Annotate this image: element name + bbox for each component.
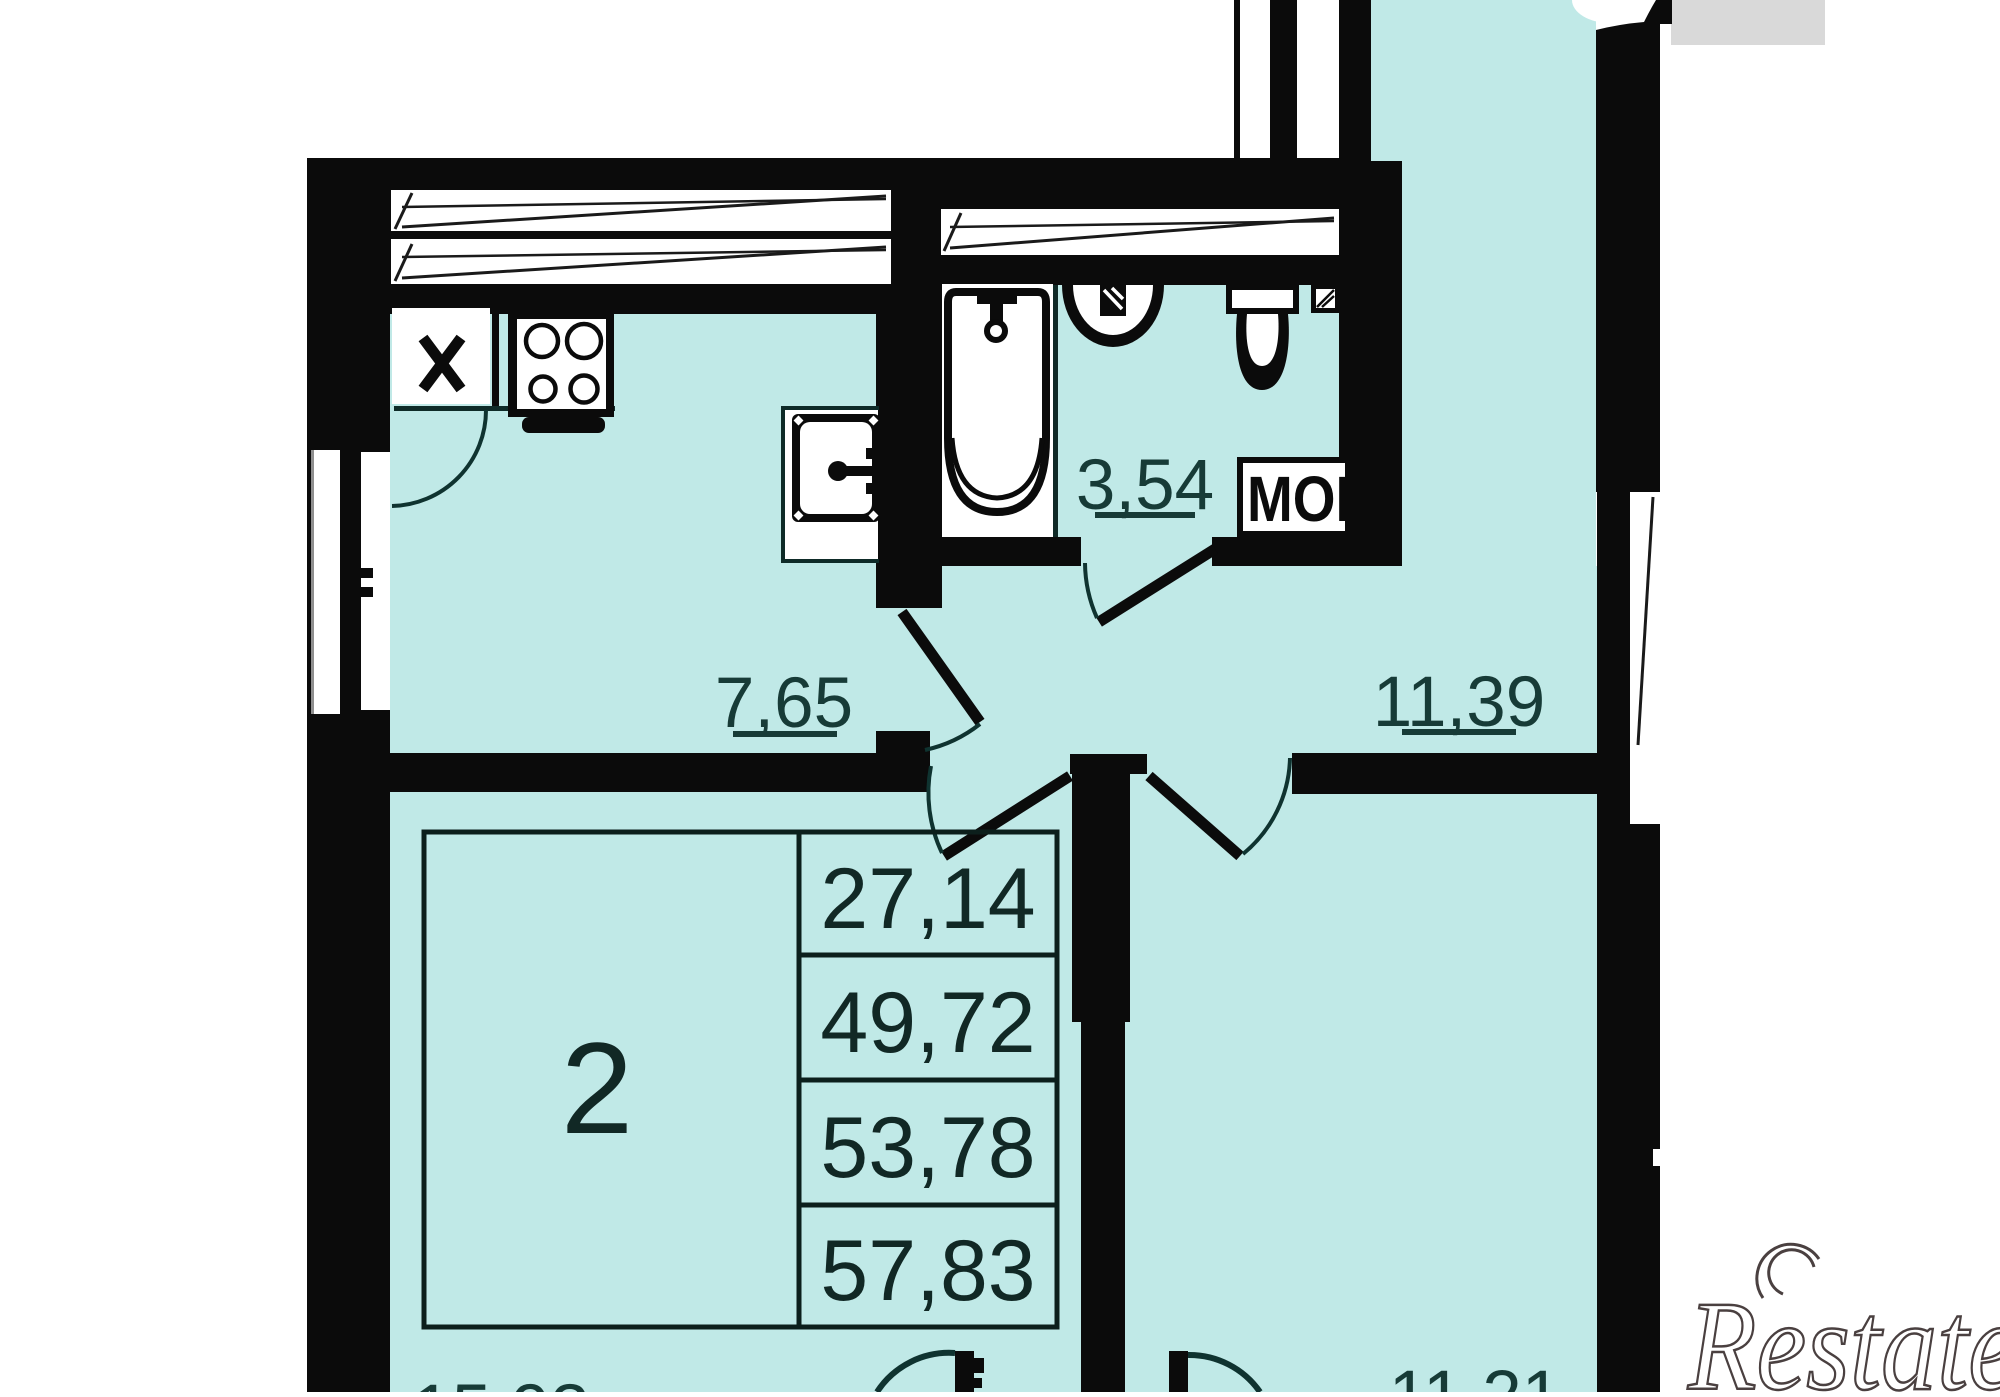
svg-text:53,78: 53,78 xyxy=(820,1100,1035,1196)
svg-text:49,72: 49,72 xyxy=(820,975,1035,1071)
svg-text:15,93: 15,93 xyxy=(412,1371,590,1392)
svg-text:Restate: Restate xyxy=(1687,1275,2000,1392)
svg-text:27,14: 27,14 xyxy=(820,851,1035,947)
svg-text:57,83: 57,83 xyxy=(820,1223,1035,1319)
svg-text:11,21: 11,21 xyxy=(1389,1357,1561,1392)
svg-text:2: 2 xyxy=(561,1015,633,1161)
